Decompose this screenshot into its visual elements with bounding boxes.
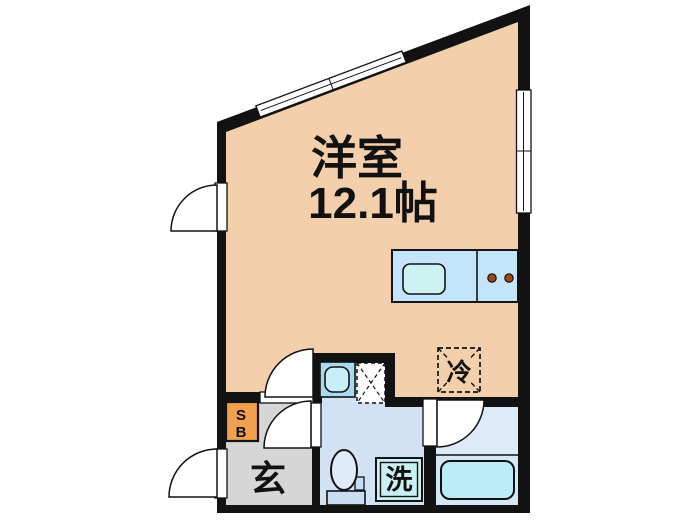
floor-plan-canvas: 冷 洗 S B	[0, 0, 700, 525]
stove-burner-right-icon	[505, 274, 513, 282]
room-size-label: 12.1帖	[308, 179, 438, 228]
left-upper-door-arc	[171, 185, 217, 231]
entry-door-arc	[169, 449, 217, 497]
toilet-bowl	[331, 450, 357, 490]
kitchen-sink	[403, 264, 445, 294]
washing-machine-space: 洗	[376, 458, 422, 501]
toilet-tank	[327, 491, 365, 505]
stove-burner-left-icon	[488, 274, 496, 282]
window-right-wall	[517, 90, 532, 213]
room-name-label: 洋室	[311, 132, 403, 184]
utility-space-box	[357, 363, 385, 403]
shoebox: S B	[226, 402, 258, 441]
bathtub	[441, 461, 514, 499]
entrance-label: 玄	[250, 458, 286, 499]
shoebox-label-s: S	[236, 407, 246, 424]
sanitary-door-leaf	[311, 403, 321, 447]
shoebox-label-b: B	[236, 424, 247, 441]
floor-plan: 冷 洗 S B	[0, 0, 700, 525]
washer-label: 洗	[386, 465, 413, 495]
bathroom-door-leaf	[423, 399, 437, 446]
washbasin-bowl	[325, 367, 349, 392]
fridge-label: 冷	[446, 358, 471, 387]
